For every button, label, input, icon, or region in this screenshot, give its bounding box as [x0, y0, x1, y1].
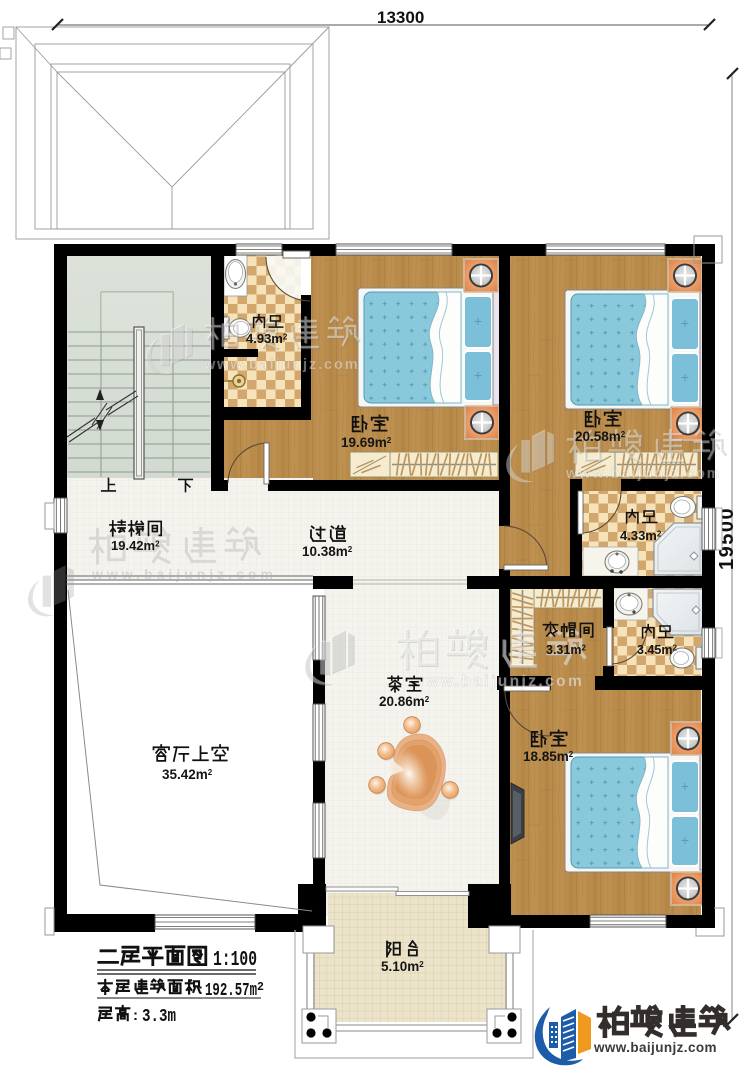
svg-text:www.baijunjz.com: www.baijunjz.com	[411, 673, 584, 690]
svg-text:20.58m2: 20.58m2	[575, 429, 626, 444]
svg-text:5.10m2: 5.10m2	[381, 959, 424, 974]
svg-text:www.baijunjz.com: www.baijunjz.com	[203, 357, 360, 373]
svg-text::: :	[133, 1007, 138, 1024]
svg-text:19.42m2: 19.42m2	[111, 538, 160, 553]
svg-text:20.86m2: 20.86m2	[379, 694, 430, 709]
svg-text:3.31m2: 3.31m2	[546, 643, 586, 657]
svg-text:www.baijunjz.com: www.baijunjz.com	[593, 1040, 717, 1055]
svg-text:4.33m2: 4.33m2	[620, 528, 662, 543]
svg-text:www.baijunjz.com: www.baijunjz.com	[91, 566, 277, 582]
svg-text:35.42m2: 35.42m2	[162, 767, 213, 782]
svg-text:10.38m2: 10.38m2	[302, 544, 353, 559]
svg-text:19.69m2: 19.69m2	[341, 435, 392, 450]
svg-text::: :	[198, 981, 203, 998]
svg-text:4.93m2: 4.93m2	[246, 331, 288, 346]
svg-text:18.85m2: 18.85m2	[523, 749, 574, 764]
svg-text:3.45m2: 3.45m2	[637, 643, 677, 657]
svg-text:3.3m: 3.3m	[142, 1006, 176, 1027]
svg-text:1:100: 1:100	[213, 949, 257, 972]
svg-text:www.baijunjz.com: www.baijunjz.com	[565, 466, 722, 482]
svg-text:13300: 13300	[377, 8, 424, 27]
